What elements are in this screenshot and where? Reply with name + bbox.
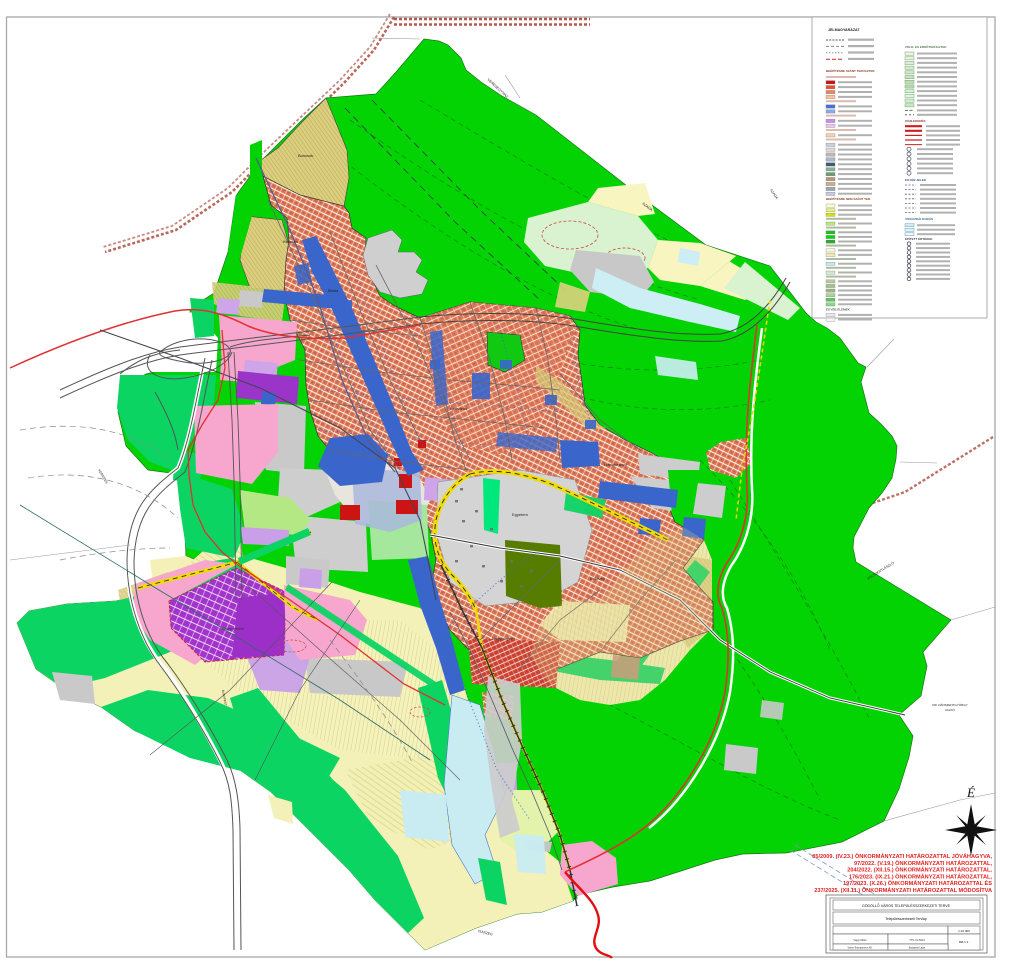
svg-text:97/2022. (V.19.) ÖNKORMÁNYZATI: 97/2022. (V.19.) ÖNKORMÁNYZATI HATÁROZAT… — [854, 860, 992, 867]
svg-text:197/2023. (X.26.) ÖNKORMÁNYZAT: 197/2023. (X.26.) ÖNKORMÁNYZATI HATÁROZA… — [843, 879, 992, 887]
svg-text:EGYÉB JELEK: EGYÉB JELEK — [905, 177, 927, 182]
svg-text:Nagyremete: Nagyremete — [222, 626, 245, 631]
svg-text:Nagyfenyves: Nagyfenyves — [492, 636, 515, 641]
svg-text:Településszerkezeti Tervlap: Településszerkezeti Tervlap — [885, 917, 927, 921]
svg-text:GÖDÖLLŐ VÁROS TELEPÜLÉSSZERKEZ: GÖDÖLLŐ VÁROS TELEPÜLÉSSZERKEZETI TERVE — [862, 903, 951, 908]
svg-text:BEÉPÍTÉSRE NEM SZÁNT TER.: BEÉPÍTÉSRE NEM SZÁNT TER. — [826, 196, 871, 201]
svg-text:ÉPÍTETT ÉRTÉKEK: ÉPÍTETT ÉRTÉKEK — [905, 236, 933, 241]
svg-text:JELMAGYARÁZAT: JELMAGYARÁZAT — [828, 27, 860, 32]
svg-text:M8-1:1.: M8-1:1. — [959, 940, 969, 944]
svg-text:Kertváros: Kertváros — [450, 406, 467, 411]
svg-text:237/2025. (XII.11.) ÖNKORMÁNYZ: 237/2025. (XII.11.) ÖNKORMÁNYZATI HATÁRO… — [814, 886, 992, 894]
svg-text:TT/1 01-5043: TT/1 01-5043 — [909, 938, 925, 942]
svg-text:Erdővég: Erdővég — [590, 576, 605, 581]
svg-text:BEÉPÍTÉSRE SZÁNT TERÜLETEK: BEÉPÍTÉSRE SZÁNT TERÜLETEK — [826, 68, 876, 73]
svg-text:Máriabesnyő: Máriabesnyő — [604, 462, 628, 467]
svg-text:ZÖLD- ÉS ERDŐTERÜLETEK: ZÖLD- ÉS ERDŐTERÜLETEK — [905, 44, 947, 49]
svg-text:176/2023. (IX.21.) ÖNKORMÁNYZA: 176/2023. (IX.21.) ÖNKORMÁNYZATI HATÁROZ… — [849, 873, 993, 880]
svg-text:Kecskés: Kecskés — [283, 239, 298, 244]
svg-text:85/2009. (IV.23.) ÖNKORMÁNYZAT: 85/2009. (IV.23.) ÖNKORMÁNYZATI HATÁROZA… — [812, 852, 992, 860]
svg-text:Vagyi Ildikó: Vagyi Ildikó — [853, 938, 867, 942]
svg-text:Budapest Lajos: Budapest Lajos — [909, 947, 926, 950]
svg-text:VÍZGAZDÁLKODÁS: VÍZGAZDÁLKODÁS — [905, 216, 933, 221]
svg-text:Blaha: Blaha — [328, 288, 339, 293]
svg-text:Város-Teampannon Kft.: Város-Teampannon Kft. — [847, 947, 872, 950]
svg-text:204/2022. (XII.15.) ÖNKORMÁNYZ: 204/2022. (XII.15.) ÖNKORMÁNYZATI HATÁRO… — [847, 867, 992, 874]
svg-text:Boncsok: Boncsok — [298, 153, 313, 158]
svg-text:EGYÉB ELEMEK: EGYÉB ELEMEK — [826, 306, 851, 311]
svg-text:KÖZLEKEDÉS: KÖZLEKEDÉS — [905, 118, 926, 123]
svg-text:VW. DÁNSZENTGYÖRGY: VW. DÁNSZENTGYÖRGY — [932, 703, 968, 707]
svg-text:Egyetem: Egyetem — [512, 512, 528, 517]
svg-text:VALKÓ: VALKÓ — [945, 707, 955, 712]
svg-text:1:16 000: 1:16 000 — [958, 929, 970, 933]
svg-text:É: É — [966, 785, 975, 800]
